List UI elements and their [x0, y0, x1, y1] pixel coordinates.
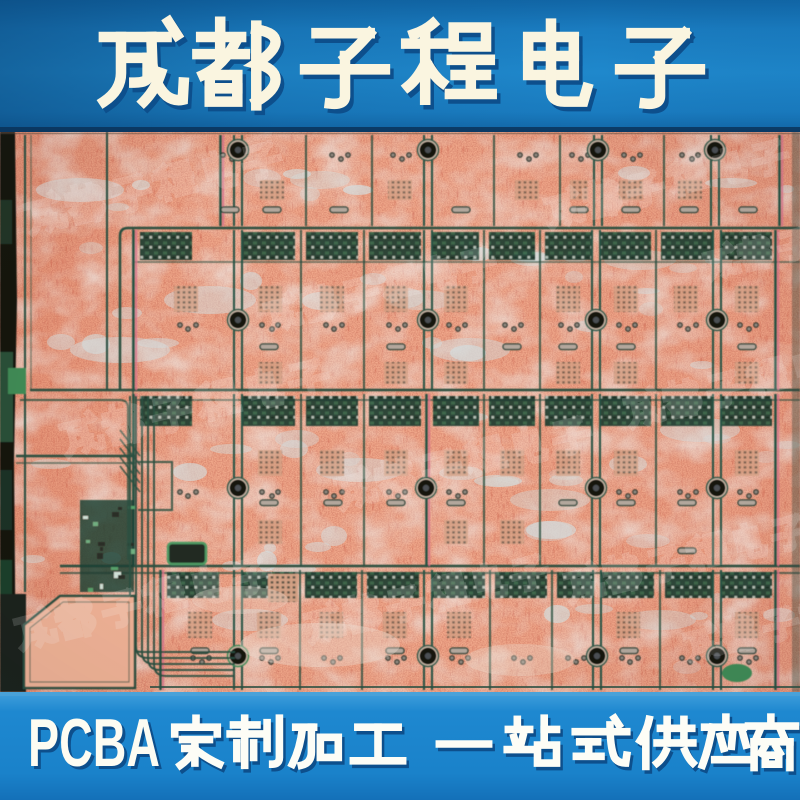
svg-text:PCBA: PCBA	[28, 705, 160, 781]
